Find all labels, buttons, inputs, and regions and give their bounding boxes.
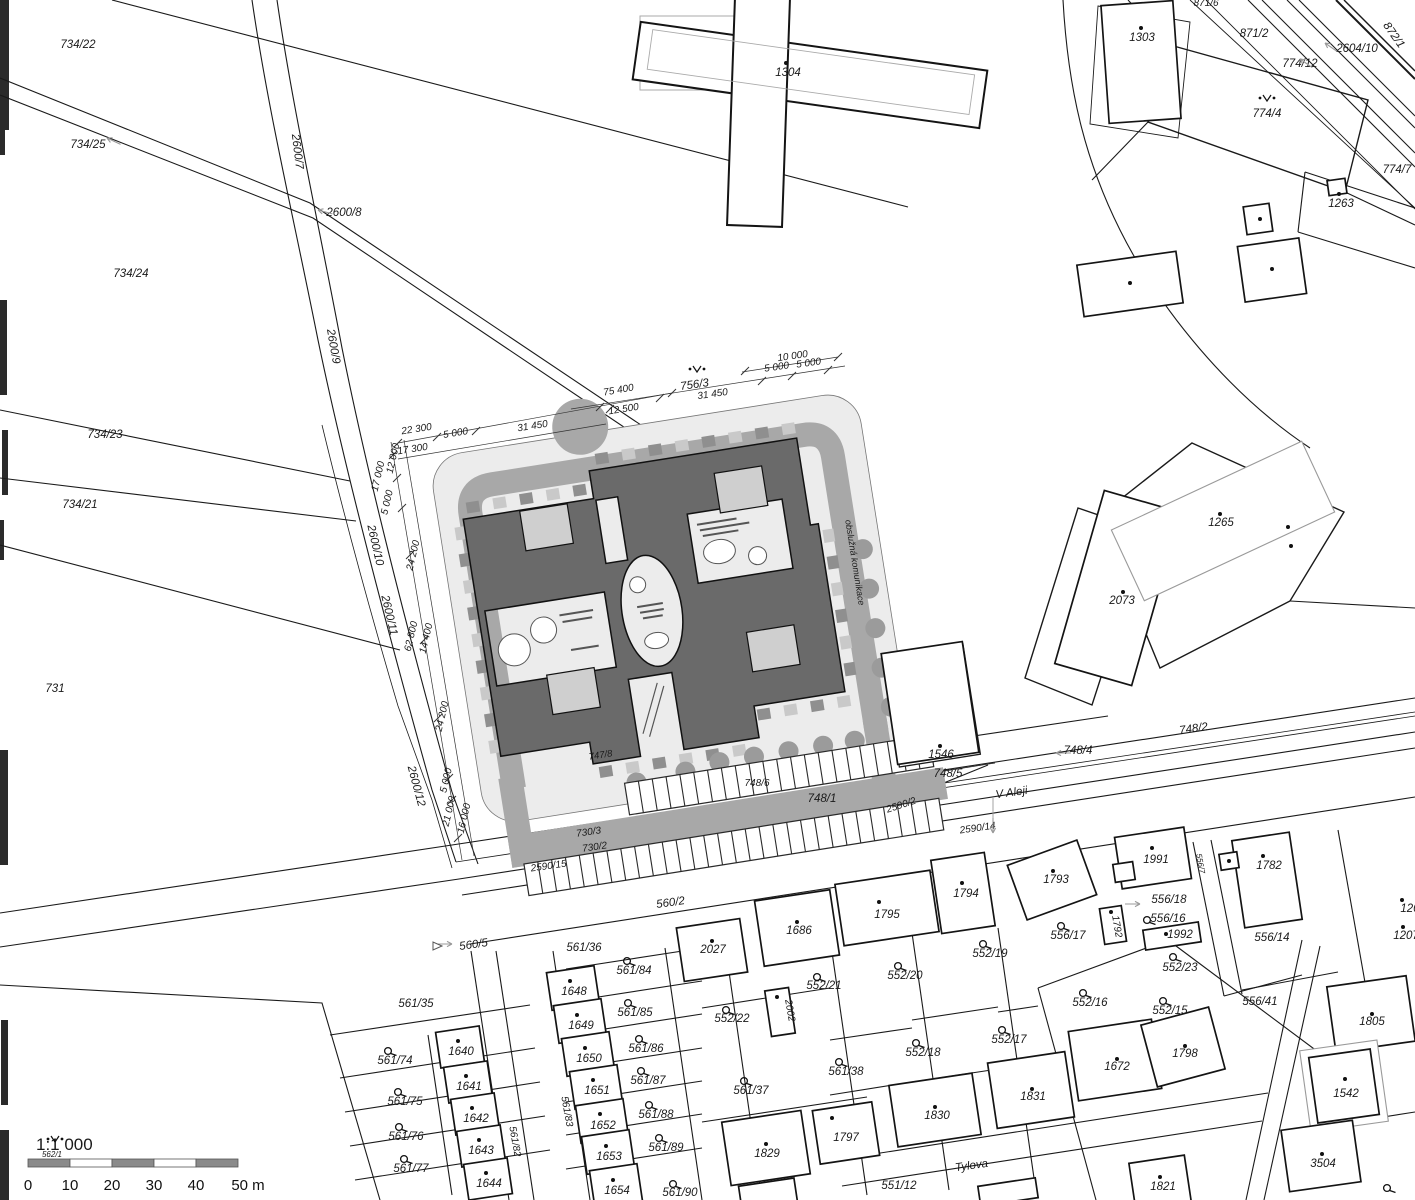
arrow-symbol: [437, 941, 452, 946]
dot-symbol: [591, 1078, 595, 1082]
arrow-symbol: [1125, 901, 1140, 906]
dot-symbol: [1115, 1057, 1119, 1061]
parcel-label: 561/84: [616, 965, 651, 977]
scale-bar-segment: [70, 1159, 112, 1167]
hook-symbol: [1170, 954, 1182, 962]
dot-symbol: [470, 1106, 474, 1110]
parcel-label: 560/2: [655, 895, 686, 911]
cadastral-map: 734/22734/252600/72600/8734/242600/9734/…: [0, 0, 1415, 1200]
parcel-label: 872/1: [1380, 20, 1406, 50]
dot-symbol: [784, 61, 788, 65]
tri-symbol: [433, 942, 442, 950]
parcel-label: 561/76: [388, 1131, 424, 1143]
street-name-tylova: Tylova: [954, 1158, 988, 1174]
scale-end-label: 50 m: [231, 1177, 264, 1194]
street-name-v-aleji: V Aleji: [995, 785, 1029, 801]
parcel-label: 774/7: [1383, 164, 1412, 176]
dot-symbol: [1051, 869, 1055, 873]
vee-symbol: [1259, 95, 1276, 101]
scale-bar: 01020304050 m: [24, 1159, 265, 1194]
parcel-label: 561/83: [558, 1096, 574, 1128]
dimension-label: 24 200: [434, 700, 452, 734]
parcel-label: 1652: [590, 1120, 616, 1132]
dot-symbol: [1400, 898, 1404, 902]
dot-symbol: [1227, 859, 1231, 863]
house-footprint: [1101, 1, 1181, 124]
dimension-label: 5 000: [379, 489, 395, 516]
parcel-label: 1303: [1129, 32, 1155, 44]
dot-symbol: [1121, 590, 1125, 594]
parcel-label: 1643: [468, 1145, 494, 1157]
parcel-label: 748/2: [1178, 721, 1209, 737]
parcel-label: 731: [45, 683, 64, 695]
dot-symbol: [1158, 1175, 1162, 1179]
parcel-label: 561/75: [387, 1096, 423, 1108]
dot-symbol: [575, 1013, 579, 1017]
dimension-label: 12 000: [385, 442, 403, 475]
parcel-label: 1672: [1104, 1061, 1130, 1073]
parcel-label: 1795: [874, 909, 900, 921]
parcel-label: 748/5: [934, 768, 963, 780]
parcel-label: 1265: [1208, 517, 1234, 529]
parcel-label: 552/19: [972, 948, 1008, 960]
scale-tick-label: 10: [62, 1177, 79, 1194]
dot-symbol: [1370, 1012, 1374, 1016]
dimension-label: 5 000: [438, 767, 454, 794]
parcel-label: 1649: [568, 1020, 594, 1032]
dimension-label: 5 000: [763, 360, 790, 374]
parcel-label: 1263: [1328, 198, 1354, 210]
parcel-label: 120: [1400, 903, 1415, 915]
parcel-label: 1542: [1333, 1088, 1359, 1100]
parcel-label: 774/4: [1253, 108, 1282, 120]
parcel-label: 561/35: [398, 998, 434, 1010]
dot-symbol: [464, 1074, 468, 1078]
dimension-label: 5 000: [795, 356, 822, 370]
parcel-label: 748/4: [1064, 745, 1093, 757]
parcel-label: 734/23: [87, 429, 123, 441]
parcel-label: 561/86: [628, 1043, 664, 1055]
dimension-label: 24 200: [405, 539, 423, 573]
parcel-label: 1805: [1359, 1016, 1385, 1028]
dimension-label: 17 000: [370, 460, 388, 493]
dot-symbol: [1139, 26, 1143, 30]
dot-symbol: [710, 939, 714, 943]
dot-symbol: [1258, 217, 1262, 221]
parcel-label: 871/6: [1193, 0, 1218, 9]
parcel-label: 1830: [924, 1110, 950, 1122]
parcel-label: 734/21: [62, 499, 97, 511]
house-footprint: [881, 642, 979, 765]
parcel-label: 748/6: [744, 778, 769, 789]
parcel-label: 2073: [1108, 595, 1135, 607]
house-footprint: [835, 870, 939, 946]
dot-symbol: [583, 1046, 587, 1050]
parcel-label: 1641: [456, 1081, 482, 1093]
scale-tick-label: 40: [188, 1177, 205, 1194]
parcel-label: 1797: [833, 1132, 859, 1144]
parcel-label: 561/74: [377, 1055, 412, 1067]
parcel-label: 552/16: [1072, 997, 1108, 1009]
dimension-label: 22 300: [400, 422, 433, 438]
dot-symbol: [933, 1105, 937, 1109]
parcel-label: 561/77: [393, 1163, 429, 1175]
house-footprint: [978, 1178, 1038, 1200]
dot-symbol: [1320, 1152, 1324, 1156]
dot-symbol: [456, 1039, 460, 1043]
house-footprint: [1141, 1007, 1225, 1087]
dot-symbol: [477, 1138, 481, 1142]
parcel-label: 552/18: [905, 1047, 941, 1059]
parcel-label: 556/41: [1242, 996, 1277, 1008]
dot-symbol: [764, 1142, 768, 1146]
parcel-label: 1651: [584, 1085, 610, 1097]
site-plan: [423, 345, 991, 900]
parcel-label: 561/87: [630, 1075, 666, 1087]
parcel-label: 1821: [1150, 1181, 1176, 1193]
scan-edge: [0, 0, 9, 1200]
dot-symbol: [1030, 1087, 1034, 1091]
dot-symbol: [1109, 910, 1113, 914]
house-footprint: [1327, 178, 1347, 195]
parcel-label: 560/5: [458, 937, 489, 953]
dot-symbol: [1289, 544, 1293, 548]
parcel-label: 1304: [775, 67, 801, 79]
dot-symbol: [795, 920, 799, 924]
dot-symbol: [604, 1144, 608, 1148]
parcel-label: 556/7: [1194, 853, 1206, 875]
parcel-label: 552/15: [1152, 1005, 1188, 1017]
parcel-label: 1648: [561, 986, 587, 998]
dot-symbol: [1183, 1044, 1187, 1048]
scale-bar-segment: [112, 1159, 154, 1167]
dot-symbol: [1343, 1077, 1347, 1081]
dot-symbol: [484, 1171, 488, 1175]
parcel-label: 552/23: [1162, 962, 1198, 974]
parcel-label: 1686: [786, 925, 812, 937]
parcel-label: 3504: [1310, 1158, 1336, 1170]
house-footprint: [1113, 862, 1135, 883]
scale-bar-segment: [154, 1159, 196, 1167]
scale-bar-segment: [196, 1159, 238, 1167]
scale-tick-label: 20: [104, 1177, 121, 1194]
parcel-label: 561/37: [733, 1085, 769, 1097]
parcel-label: 552/21: [806, 980, 841, 992]
parcel-label: 561/38: [828, 1066, 864, 1078]
parcel-label: 871/2: [1240, 28, 1269, 40]
parcel-label: 1207: [1393, 930, 1415, 942]
parcel-label: 552/17: [991, 1034, 1027, 1046]
parcel-label: 2600/7: [289, 132, 305, 170]
dot-symbol: [938, 744, 942, 748]
parcel-label: 2027: [699, 944, 726, 956]
parcel-label: 748/1: [808, 793, 837, 805]
parcel-label: 556/16: [1150, 913, 1186, 925]
dimension-label: 14 400: [418, 622, 436, 655]
dimension-label: 16 000: [456, 802, 474, 835]
scale-bar-segment: [28, 1159, 70, 1167]
parcel-label: 1546: [928, 749, 954, 761]
parcel-label: 1992: [1167, 929, 1193, 941]
dot-symbol: [1128, 281, 1132, 285]
parcel-label: 552/22: [714, 1013, 750, 1025]
parcel-label: 556/17: [1050, 930, 1086, 942]
dot-symbol: [830, 1116, 834, 1120]
dimension-label: 31 450: [517, 419, 549, 435]
parcel-label: 561/89: [648, 1142, 684, 1154]
dot-symbol: [598, 1112, 602, 1116]
cadastral-map-canvas: { "map": { "title": "cadastral site plan…: [0, 0, 1415, 1200]
parcel-label: 2600/12: [404, 764, 427, 809]
vee-symbol: [689, 366, 706, 372]
dot-symbol: [1270, 267, 1274, 271]
dimension-label: 17 300: [397, 442, 429, 458]
building-1304: [633, 0, 988, 227]
scale-tick-label: 0: [24, 1177, 32, 1194]
parcel-label: 734/25: [70, 139, 106, 151]
parcel-label: 1653: [596, 1151, 622, 1163]
dot-symbol: [960, 881, 964, 885]
dot-symbol: [1401, 925, 1405, 929]
parcel-label: 561/82: [506, 1126, 522, 1158]
parcel-label: 561/85: [617, 1007, 653, 1019]
dot-symbol: [1337, 192, 1341, 196]
parcel-label: 561/36: [566, 942, 602, 954]
parcel-label: 1831: [1020, 1091, 1046, 1103]
parcel-label: 551/12: [881, 1180, 917, 1192]
dot-symbol: [775, 995, 779, 999]
parcel-label: 556/14: [1254, 932, 1289, 944]
parcel-label: 734/22: [60, 39, 96, 51]
hook-symbol: [1384, 1185, 1396, 1193]
parcel-label: 561/88: [638, 1109, 674, 1121]
parcel-label: 1654: [604, 1185, 630, 1197]
house-footprint: [1281, 1120, 1361, 1191]
parcel-label: 1798: [1172, 1048, 1198, 1060]
parcel-label: 1640: [448, 1046, 474, 1058]
parcel-label: 1793: [1043, 874, 1069, 886]
scale-tick-label: 30: [146, 1177, 163, 1194]
dimension-label: 5 000: [442, 426, 469, 441]
dot-symbol: [611, 1178, 615, 1182]
parcel-label: 1991: [1143, 854, 1169, 866]
scale-ratio: 1:1 000: [36, 1135, 93, 1154]
parcel-label: 1644: [476, 1178, 502, 1190]
parcel-label: 2600/11: [378, 593, 399, 636]
dot-symbol: [1261, 854, 1265, 858]
parcel-label: 1782: [1256, 860, 1282, 872]
parcel-label: 2604/10: [1335, 43, 1378, 55]
dot-symbol: [877, 900, 881, 904]
parcel-label: 556/18: [1151, 894, 1187, 906]
dot-symbol: [568, 979, 572, 983]
parcel-label: 1642: [463, 1113, 489, 1125]
parcel-label: 1650: [576, 1053, 602, 1065]
house-footprint: [1232, 832, 1302, 928]
parcel-label: 1794: [953, 888, 979, 900]
parcel-label: 734/24: [113, 268, 148, 280]
dot-symbol: [1150, 846, 1154, 850]
parcel-label: 561/90: [662, 1187, 698, 1199]
dimension-label: 75 400: [603, 382, 635, 398]
dot-symbol: [1218, 512, 1222, 516]
parcel-label: 552/20: [887, 970, 923, 982]
house-footprint: [1309, 1049, 1380, 1123]
parcel-label: 1829: [754, 1148, 780, 1160]
dot-symbol: [1286, 525, 1290, 529]
dot-symbol: [1164, 932, 1168, 936]
